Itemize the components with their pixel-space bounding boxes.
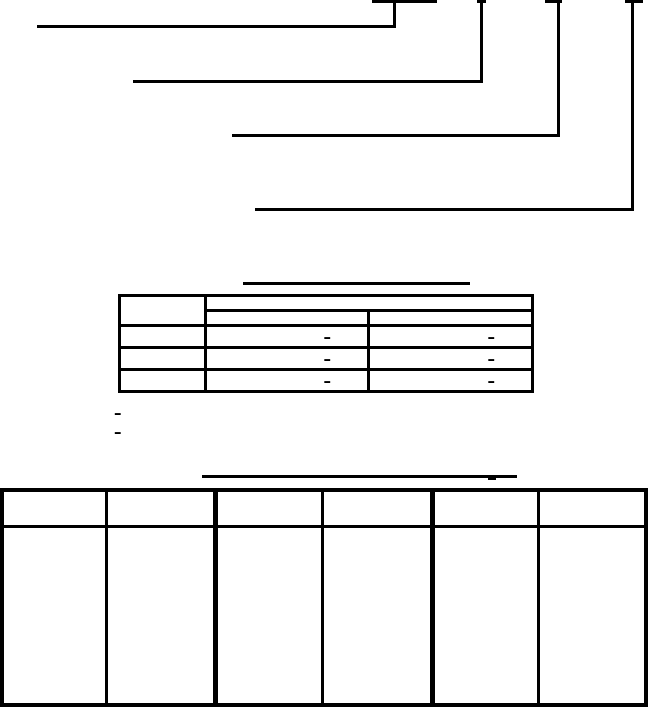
document-page: – – – – – – – – [0,0,650,718]
bottom-table-header-cell-4 [323,490,433,526]
bottom-table-body-cell-4 [323,526,433,705]
middle-table-corner-header-cell [120,296,206,326]
bottom-table-title-underline [202,475,517,478]
footnote-marker-2: – [114,425,122,440]
middle-table-title-underline [243,282,470,285]
table-row [2,526,646,705]
middle-table-group-header-cell [206,296,533,311]
dash-mark: – [324,372,332,390]
middle-table-subheader-cell-2 [369,311,533,326]
middle-table-row3-label-cell [120,370,206,392]
middle-table-row1-label-cell [120,326,206,348]
segment-underline-4 [625,0,643,3]
bottom-table-header-cell-5 [433,490,539,526]
callout-2-leader-line [133,80,483,83]
table-row: – – [120,348,533,370]
middle-table-row2-value-cell-1: – [206,348,369,370]
dash-mark: – [324,350,332,368]
bottom-table [0,488,648,707]
segment-underline-1 [372,0,437,3]
callout-2-vertical-line [480,3,483,83]
dash-mark: – [488,372,496,390]
bottom-table-body-cell-1 [2,526,107,705]
middle-table-row3-value-cell-1: – [206,370,369,392]
dash-mark: – [488,328,496,346]
bottom-table-header-cell-6 [538,490,646,526]
callout-3-vertical-line [557,3,560,137]
footnote-marker-1: – [114,406,122,421]
bottom-table-header-cell-3 [215,490,323,526]
callout-4-leader-line [255,208,634,211]
bottom-table-body-cell-5 [433,526,539,705]
table-row: – – [120,326,533,348]
bottom-table-header-cell-1 [2,490,107,526]
middle-table-row1-value-cell-1: – [206,326,369,348]
middle-table-row1-value-cell-2: – [369,326,533,348]
bottom-table-title-underline-tick [488,478,496,480]
middle-table-row2-value-cell-2: – [369,348,533,370]
table-row [2,490,646,526]
callout-4-vertical-line [631,3,634,211]
middle-table-row2-label-cell [120,348,206,370]
bottom-table-header-cell-2 [107,490,216,526]
middle-table-subheader-cell-1 [206,311,369,326]
table-row: – – [120,370,533,392]
dash-mark: – [488,350,496,368]
callout-3-leader-line [232,134,560,137]
middle-table: – – – – – – [118,294,534,393]
middle-table-row3-value-cell-2: – [369,370,533,392]
callout-1-leader-line [37,25,396,28]
bottom-table-body-cell-2 [107,526,216,705]
dash-mark: – [324,328,332,346]
bottom-table-body-cell-3 [215,526,323,705]
bottom-table-body-cell-6 [538,526,646,705]
